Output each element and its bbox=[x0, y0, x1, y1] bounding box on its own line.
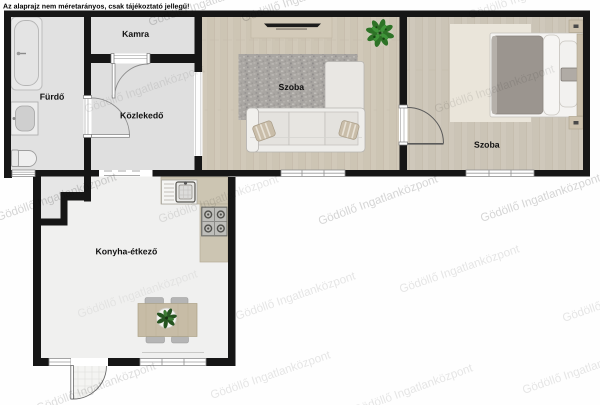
svg-text:Az alaprajz nem méretarányos,: Az alaprajz nem méretarányos, csak tájék… bbox=[3, 2, 189, 10]
svg-text:Konyha-étkező: Konyha-étkező bbox=[95, 246, 157, 256]
svg-text:Fürdő: Fürdő bbox=[40, 92, 65, 102]
svg-text:Szoba: Szoba bbox=[279, 82, 305, 92]
svg-text:Szoba: Szoba bbox=[474, 140, 500, 150]
svg-text:Közlekedő: Közlekedő bbox=[120, 110, 163, 120]
svg-text:Kamra: Kamra bbox=[122, 29, 149, 39]
